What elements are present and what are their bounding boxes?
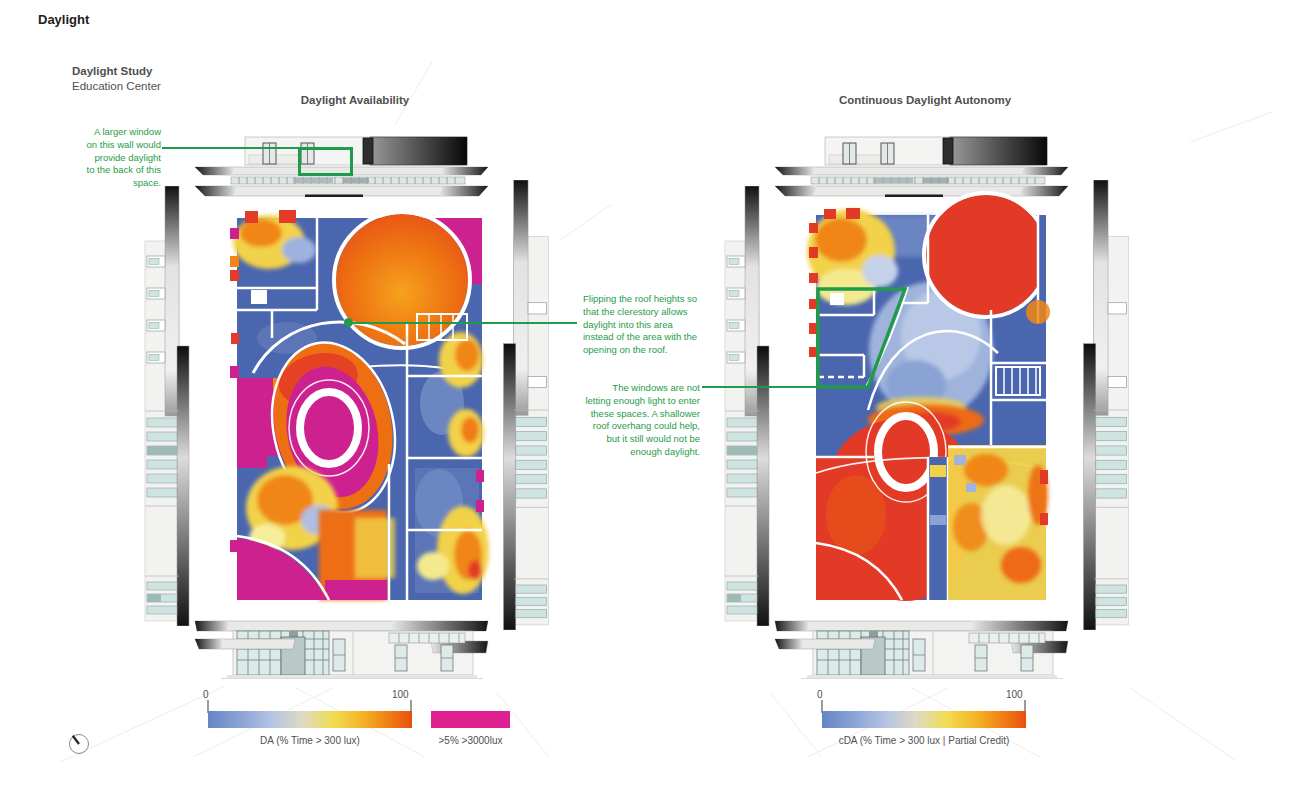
side-elevation-right-of-left-panel xyxy=(497,180,555,630)
side-elevation-left-of-left-panel xyxy=(139,186,195,626)
top-elevation-right xyxy=(773,129,1070,197)
side-elevation-right-of-right-panel xyxy=(1077,180,1135,630)
bottom-elevation-right xyxy=(773,617,1070,681)
cda-legend-caption: cDA (% Time > 300 lux | Partial Credit) xyxy=(770,735,1078,746)
left-panel-title: Daylight Availability xyxy=(255,94,455,106)
side-elevation-left-of-right-panel xyxy=(719,186,775,626)
annotation-overhang-leader-line xyxy=(702,386,868,388)
annotation-roof-note: Flipping the roof heights so that the cl… xyxy=(583,293,723,357)
cda-legend-gradient-bar xyxy=(822,711,1026,728)
da-legend-max: 100 xyxy=(392,689,409,700)
bottom-elevation-left xyxy=(193,617,490,681)
annotation-window-leader-line xyxy=(162,147,299,149)
cda-legend-max: 100 xyxy=(1006,689,1023,700)
right-panel-title: Continuous Daylight Autonomy xyxy=(805,94,1045,106)
threshold-legend-bar xyxy=(431,711,510,728)
threshold-legend-caption: >5% >3000lux xyxy=(410,735,531,746)
da-legend-gradient-bar xyxy=(208,711,412,728)
heatmap-continuous-daylight-autonomy xyxy=(816,215,1046,600)
da-legend-caption: DA (% Time > 300 lux) xyxy=(208,735,412,746)
cda-legend-min: 0 xyxy=(817,689,823,700)
heatmap-daylight-availability xyxy=(237,218,482,600)
annotation-overhang-note: The windows are not letting enough light… xyxy=(560,382,700,459)
da-legend-min: 0 xyxy=(203,689,209,700)
study-subtitle: Education Center xyxy=(72,79,161,94)
north-arrow-icon xyxy=(66,731,92,757)
study-title: Daylight Study xyxy=(72,64,153,79)
page-title: Daylight xyxy=(38,12,89,27)
annotation-window-note: A larger window on this wall would provi… xyxy=(55,126,161,190)
annotation-roof-leader-line xyxy=(349,322,577,324)
annotation-window-highlight-rect xyxy=(298,147,353,176)
daylight-study-sheet: Daylight Daylight Study Education Center… xyxy=(0,0,1300,789)
